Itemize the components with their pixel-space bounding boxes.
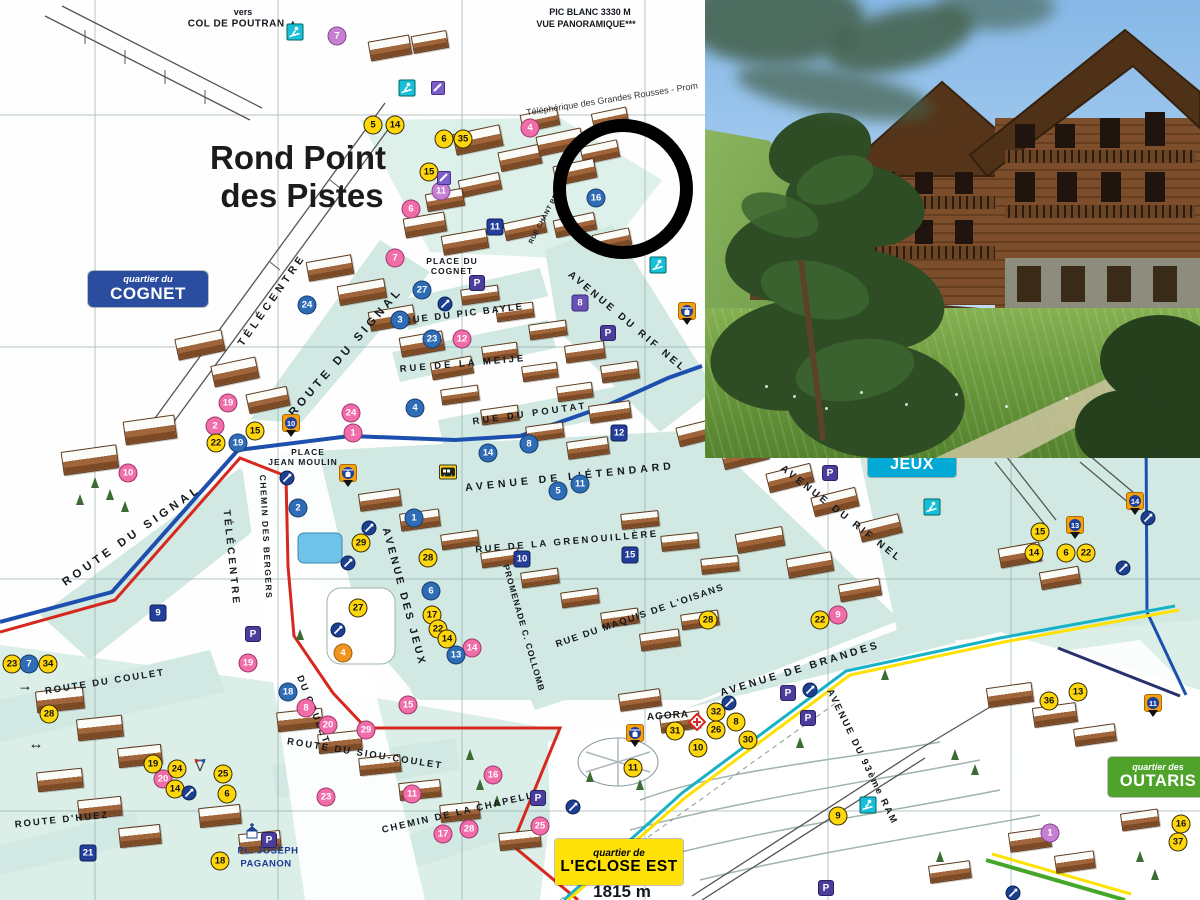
marker-badge-yellow: 18 xyxy=(211,852,230,871)
marker-badge-yellow: 30 xyxy=(739,731,758,750)
escalator-icon xyxy=(722,696,737,711)
marker-badge-yellow: 25 xyxy=(214,765,233,784)
escalator-icon xyxy=(438,297,453,312)
street-label: COL DE POUTRAN ▲ xyxy=(188,19,299,30)
street-label: ROUTE DU SIOU-COULET xyxy=(286,736,443,772)
ski-lift-marker-icon xyxy=(626,724,644,742)
finish-flags-icon xyxy=(191,757,209,773)
marker-badge-blue: 4 xyxy=(406,399,425,418)
marker-badge-blue: 19 xyxy=(229,434,248,453)
street-label: TÉLÉCENTRE xyxy=(220,509,241,606)
marker-badge-yellow: 28 xyxy=(699,611,718,630)
lift-access-icon xyxy=(431,81,445,95)
marker-badge-blue: 24 xyxy=(298,296,317,315)
marker-badge-violet: 1 xyxy=(1041,824,1060,843)
quartier-eclose-label: quartier de L'ECLOSE EST xyxy=(555,839,683,885)
marker-badge-pink: 6 xyxy=(402,200,421,219)
street-label: Rond Point xyxy=(210,139,386,177)
marker-badge-yellow: 24 xyxy=(168,760,187,779)
marker-badge-pink: 16 xyxy=(484,766,503,785)
marker-badge-yellow: 9 xyxy=(829,807,848,826)
street-label: PLACE xyxy=(291,447,325,457)
skier-icon xyxy=(650,257,667,274)
ski-lift-marker-icon: 13 xyxy=(1066,516,1084,534)
marker-badge-yellow: 34 xyxy=(39,655,58,674)
marker-badge-pink: 29 xyxy=(357,721,376,740)
skier-icon xyxy=(924,499,941,516)
marker-badge-pink: 28 xyxy=(460,820,479,839)
parking-icon: P xyxy=(780,685,796,701)
marker-badge-pink: 1 xyxy=(344,424,363,443)
marker-badge-pink: 23 xyxy=(317,788,336,807)
marker-badge-yellow: 31 xyxy=(666,722,685,741)
escalator-icon xyxy=(1141,511,1156,526)
marker-badge-blue: 3 xyxy=(391,311,410,330)
highlight-circle-annotation xyxy=(553,119,693,259)
marker-badge-pink: 19 xyxy=(239,654,258,673)
marker-badge-yellow: 27 xyxy=(349,599,368,618)
street-label: ROUTE DU SIGNAL xyxy=(60,483,203,588)
ski-lift-marker-icon: 10 xyxy=(282,414,300,432)
resort-map: TÉLÉCENTRETÉLÉCENTRECHEMIN DES BERGERSRO… xyxy=(0,0,1200,900)
marker-badge-navysq: 15 xyxy=(622,547,639,564)
marker-badge-pink: 7 xyxy=(386,249,405,268)
marker-badge-yellow: 37 xyxy=(1169,833,1188,852)
marker-badge-yellow: 22 xyxy=(207,434,226,453)
escalator-icon xyxy=(331,623,346,638)
street-label: PAGANON xyxy=(240,859,291,870)
street-label: AVENUE DE L'ÉTENDARD xyxy=(465,460,676,494)
street-label: Téléphérique des Grandes Rousses - Prom xyxy=(525,80,698,117)
parking-icon: P xyxy=(800,710,816,726)
quartier-cognet-label: quartier du COGNET xyxy=(88,271,208,307)
marker-badge-pink: 15 xyxy=(399,696,418,715)
marker-badge-pink: 20 xyxy=(319,716,338,735)
church-icon xyxy=(244,823,260,839)
marker-badge-yellow: 14 xyxy=(386,116,405,135)
escalator-icon xyxy=(566,800,581,815)
marker-badge-yellow: 35 xyxy=(454,130,473,149)
marker-badge-pink: 17 xyxy=(434,825,453,844)
escalator-icon xyxy=(341,556,356,571)
marker-badge-violet: 7 xyxy=(328,27,347,46)
marker-badge-yellow: 22 xyxy=(1077,544,1096,563)
marker-badge-yellow: 22 xyxy=(811,611,830,630)
street-label: RUE DU PIC BAYLE xyxy=(403,301,524,327)
marker-badge-blue: 18 xyxy=(279,683,298,702)
marker-badge-yellow: 15 xyxy=(1031,523,1050,542)
quartier-big-text: JEUX xyxy=(890,457,934,474)
quartier-big-text: L'ECLOSE EST xyxy=(560,859,677,875)
marker-badge-purplesq: 8 xyxy=(572,295,589,312)
parking-icon: P xyxy=(245,626,261,642)
marker-badge-orange: 4 xyxy=(334,644,353,663)
two-way-arrow-icon: ↔ xyxy=(29,736,44,753)
marker-badge-yellow: 14 xyxy=(1025,544,1044,563)
marker-badge-yellow: 6 xyxy=(218,785,237,804)
street-label: AVENUE DES JEUX xyxy=(380,526,429,667)
street-label: vers xyxy=(234,7,253,17)
bus-stop-icon xyxy=(439,465,457,480)
parking-icon: P xyxy=(469,275,485,291)
street-label: RUE DE LA MEIJE xyxy=(399,353,526,375)
marker-badge-blue: 23 xyxy=(423,330,442,349)
marker-badge-blue: 14 xyxy=(479,444,498,463)
quartier-big-text: COGNET xyxy=(110,285,186,303)
marker-badge-blue: 27 xyxy=(413,281,432,300)
escalator-icon xyxy=(280,471,295,486)
marker-badge-yellow: 8 xyxy=(727,713,746,732)
street-label: ROUTE D'HUEZ xyxy=(14,810,110,831)
marker-badge-yellow: 29 xyxy=(352,534,371,553)
ski-lift-marker-icon xyxy=(339,464,357,482)
marker-badge-pink: 11 xyxy=(403,785,422,804)
marker-badge-yellow: 16 xyxy=(1172,815,1191,834)
parking-icon: P xyxy=(530,790,546,806)
parking-icon: P xyxy=(261,832,277,848)
marker-badge-blue: 13 xyxy=(447,646,466,665)
lift-access-icon xyxy=(437,171,451,185)
direction-arrow-icon: → xyxy=(18,678,33,695)
parking-icon: P xyxy=(818,880,834,896)
marker-badge-blue: 7 xyxy=(20,655,39,674)
marker-badge-blue: 8 xyxy=(520,435,539,454)
quartier-outaris-label: quartier des OUTARIS xyxy=(1108,757,1200,797)
quartier-big-text: OUTARIS xyxy=(1120,773,1197,790)
street-label: PLACE DU xyxy=(426,256,477,266)
escalator-icon xyxy=(362,521,377,536)
street-label: CHEMIN DES BERGERS xyxy=(258,474,275,599)
marker-badge-blue: 2 xyxy=(289,499,308,518)
street-label: VUE PANORAMIQUE*** xyxy=(536,19,635,29)
marker-badge-yellow: 28 xyxy=(419,549,438,568)
marker-badge-yellow: 19 xyxy=(144,755,163,774)
marker-badge-navysq: 10 xyxy=(514,551,531,568)
marker-badge-blue: 6 xyxy=(422,582,441,601)
marker-badge-pink: 25 xyxy=(531,817,550,836)
street-label: PIC BLANC 3330 M xyxy=(549,7,631,17)
street-label: ROUTE DU COULET xyxy=(44,667,166,697)
marker-badge-blue: 1 xyxy=(405,509,424,528)
marker-badge-pink: 10 xyxy=(119,464,138,483)
marker-badge-yellow: 28 xyxy=(40,705,59,724)
street-label: AGORA xyxy=(647,709,690,723)
wildflower-dots xyxy=(765,385,768,388)
marker-badge-yellow: 15 xyxy=(420,163,439,182)
marker-badge-yellow: 36 xyxy=(1040,692,1059,711)
ski-lift-marker-icon: 11 xyxy=(1144,694,1162,712)
marker-badge-pink: 9 xyxy=(829,606,848,625)
escalator-icon xyxy=(1116,561,1131,576)
marker-badge-yellow: 6 xyxy=(1057,544,1076,563)
street-label: AVENUE DE BRANDES xyxy=(719,639,882,699)
marker-badge-pink: 24 xyxy=(342,404,361,423)
escalator-icon xyxy=(1006,886,1021,900)
marker-badge-navysq: 21 xyxy=(80,845,97,862)
marker-badge-yellow: 15 xyxy=(246,422,265,441)
marker-badge-yellow: 6 xyxy=(435,130,454,149)
marker-badge-pink: 8 xyxy=(297,699,316,718)
street-label: PROMENADE C. COLLOMB xyxy=(501,563,547,692)
street-label: JEAN MOULIN xyxy=(268,457,338,467)
parking-icon: P xyxy=(600,325,616,341)
street-label: AVENUE DU RIF NEL xyxy=(566,269,689,374)
escalator-icon xyxy=(182,786,197,801)
street-label: RUE DU POUTAT xyxy=(472,401,588,428)
photo-inset-chalet xyxy=(705,0,1200,458)
parking-icon: P xyxy=(822,465,838,481)
marker-badge-yellow: 13 xyxy=(1069,683,1088,702)
marker-badge-blue: 5 xyxy=(549,482,568,501)
marker-badge-yellow: 26 xyxy=(707,721,726,740)
ski-lift-marker-icon: 14 xyxy=(1126,492,1144,510)
ski-lift-marker-icon xyxy=(678,302,696,320)
marker-badge-navysq: 12 xyxy=(611,425,628,442)
street-label: AVENUE DU RIF NEL xyxy=(778,463,904,565)
meeting-point-icon xyxy=(688,713,706,731)
marker-badge-yellow: 11 xyxy=(624,759,643,778)
marker-badge-pink: 4 xyxy=(521,119,540,138)
skier-icon xyxy=(287,24,304,41)
escalator-icon xyxy=(803,683,818,698)
marker-badge-pink: 19 xyxy=(219,394,238,413)
skier-icon xyxy=(860,797,877,814)
street-label: des Pistes xyxy=(220,177,383,215)
skier-icon xyxy=(399,80,416,97)
marker-badge-yellow: 10 xyxy=(689,739,708,758)
marker-badge-pink: 12 xyxy=(453,330,472,349)
marker-badge-navysq: 9 xyxy=(150,605,167,622)
marker-badge-navysq: 11 xyxy=(487,219,504,236)
marker-badge-blue: 11 xyxy=(571,475,590,494)
marker-badge-yellow: 5 xyxy=(364,116,383,135)
street-label: COGNET xyxy=(431,266,473,276)
